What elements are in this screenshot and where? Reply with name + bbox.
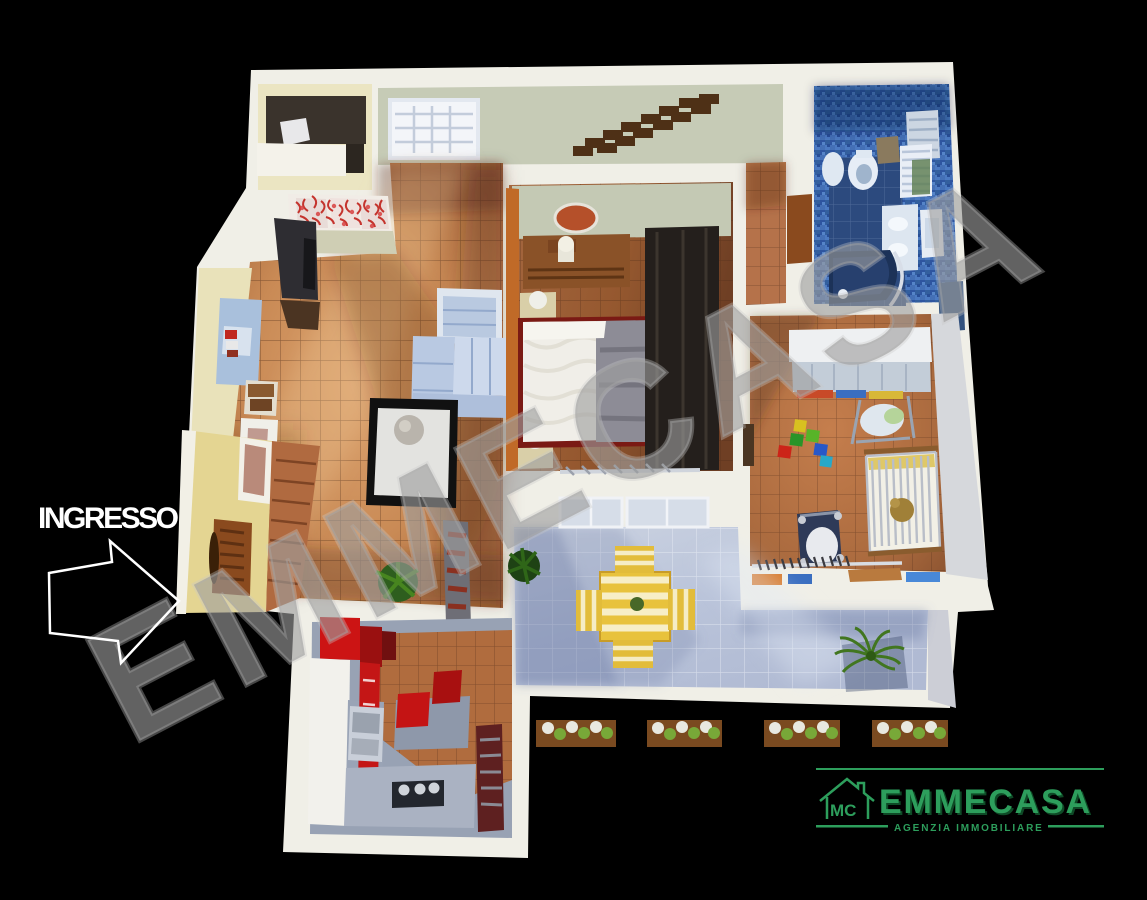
svg-text:EMMECASA: EMMECASA (879, 783, 1090, 821)
svg-text:MC: MC (830, 801, 856, 820)
svg-text:INGRESSO: INGRESSO (38, 502, 180, 535)
svg-text:AGENZIA IMMOBILIARE: AGENZIA IMMOBILIARE (894, 823, 1044, 834)
